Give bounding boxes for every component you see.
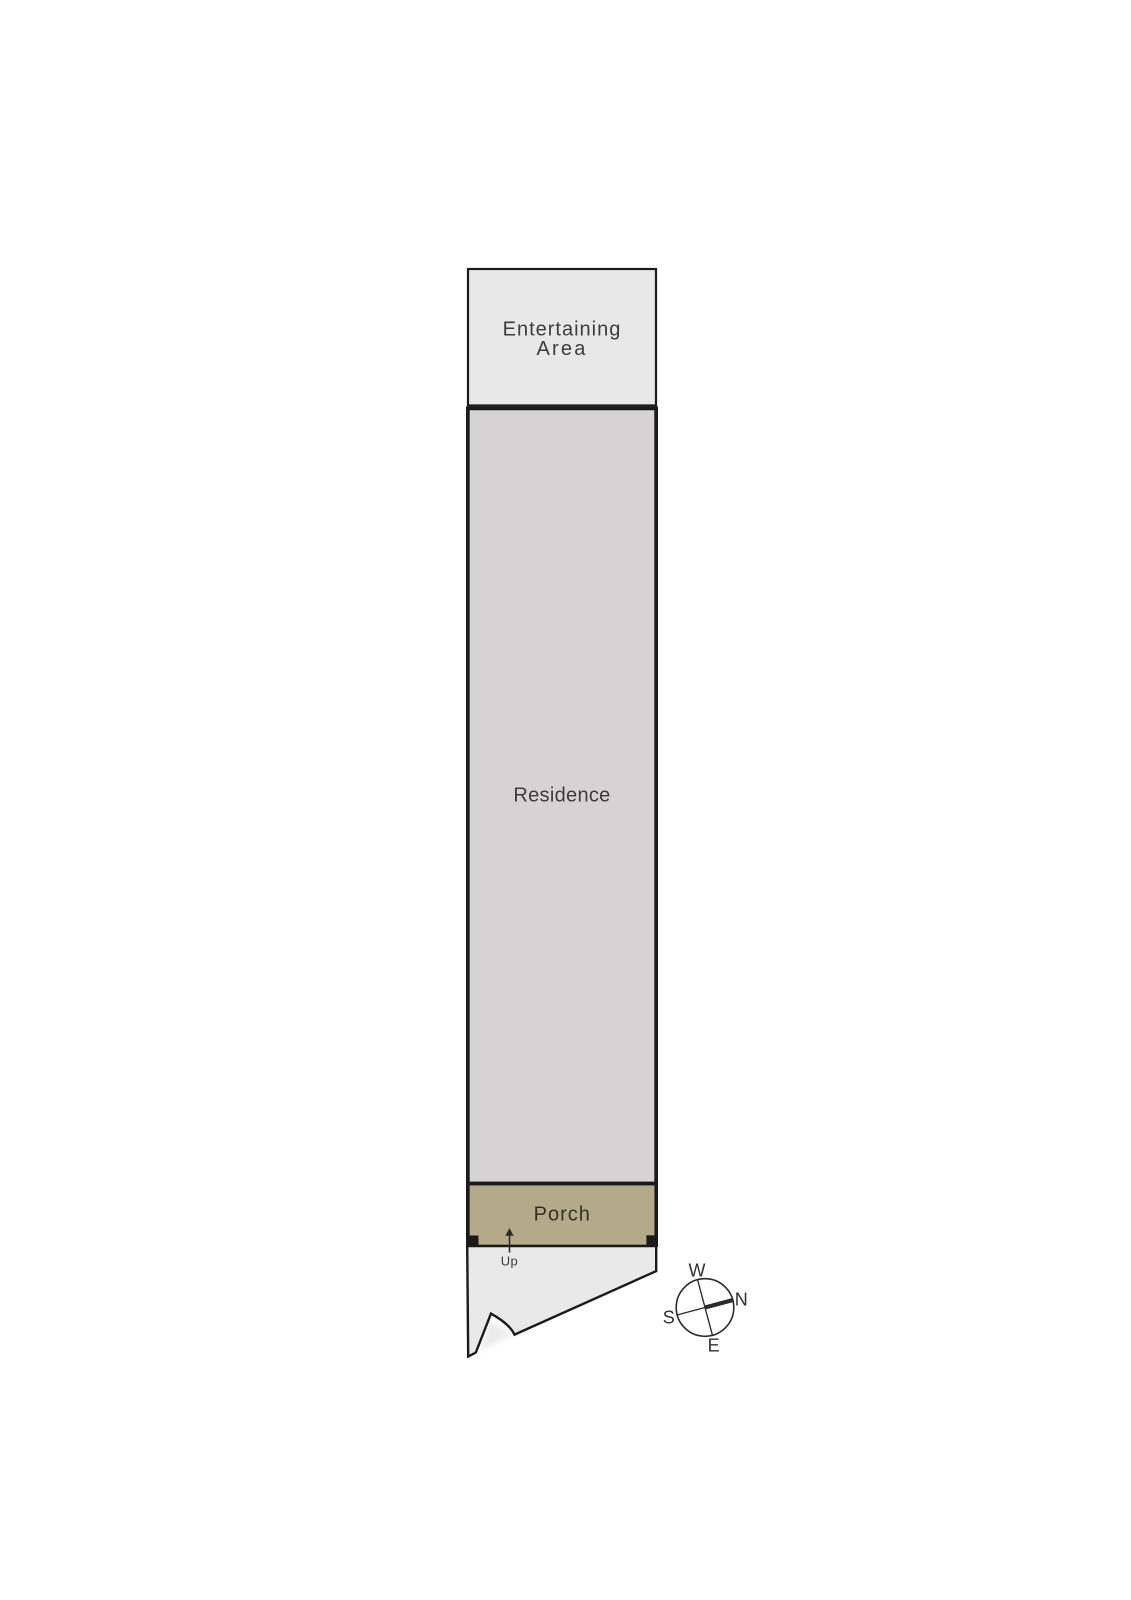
svg-text:Residence: Residence xyxy=(513,784,610,806)
svg-text:Porch: Porch xyxy=(534,1204,591,1226)
svg-text:S: S xyxy=(663,1308,675,1328)
svg-text:Area: Area xyxy=(536,338,587,360)
svg-text:W: W xyxy=(689,1261,706,1281)
svg-text:Up: Up xyxy=(501,1254,518,1269)
svg-text:E: E xyxy=(708,1335,720,1355)
svg-text:N: N xyxy=(735,1290,748,1310)
